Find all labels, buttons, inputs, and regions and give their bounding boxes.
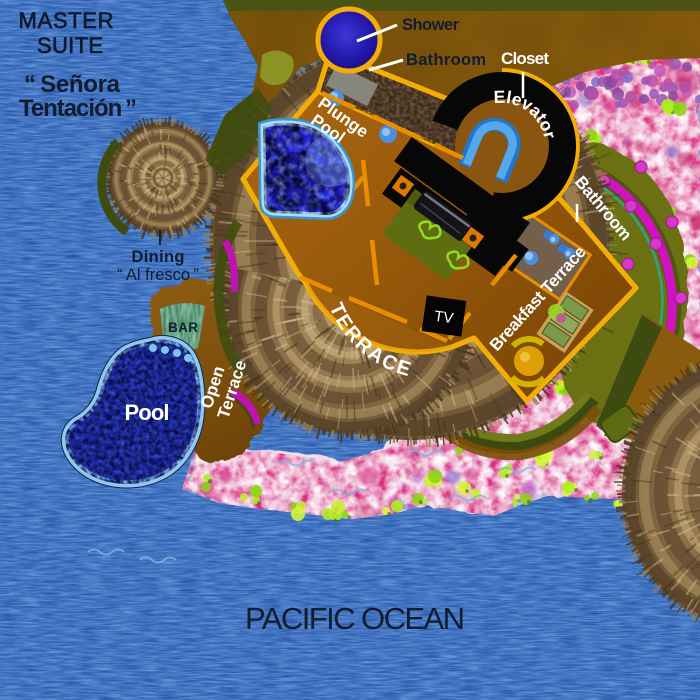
svg-text:“ Al fresco ”: “ Al fresco ” bbox=[117, 266, 199, 284]
svg-text:Dining: Dining bbox=[132, 248, 185, 266]
svg-text:Pool: Pool bbox=[125, 400, 170, 425]
svg-text:Bathroom: Bathroom bbox=[406, 51, 486, 69]
svg-text:SUITE: SUITE bbox=[37, 33, 103, 58]
svg-text:MASTER: MASTER bbox=[19, 8, 114, 33]
svg-text:BAR: BAR bbox=[168, 320, 198, 335]
svg-text:Tentación ”: Tentación ” bbox=[19, 95, 137, 122]
svg-text:Closet: Closet bbox=[501, 49, 549, 68]
svg-text:TV: TV bbox=[433, 308, 454, 328]
svg-text:PACIFIC OCEAN: PACIFIC OCEAN bbox=[245, 601, 465, 636]
svg-text:Shower: Shower bbox=[402, 16, 460, 34]
svg-text:“ Señora: “ Señora bbox=[24, 71, 121, 98]
